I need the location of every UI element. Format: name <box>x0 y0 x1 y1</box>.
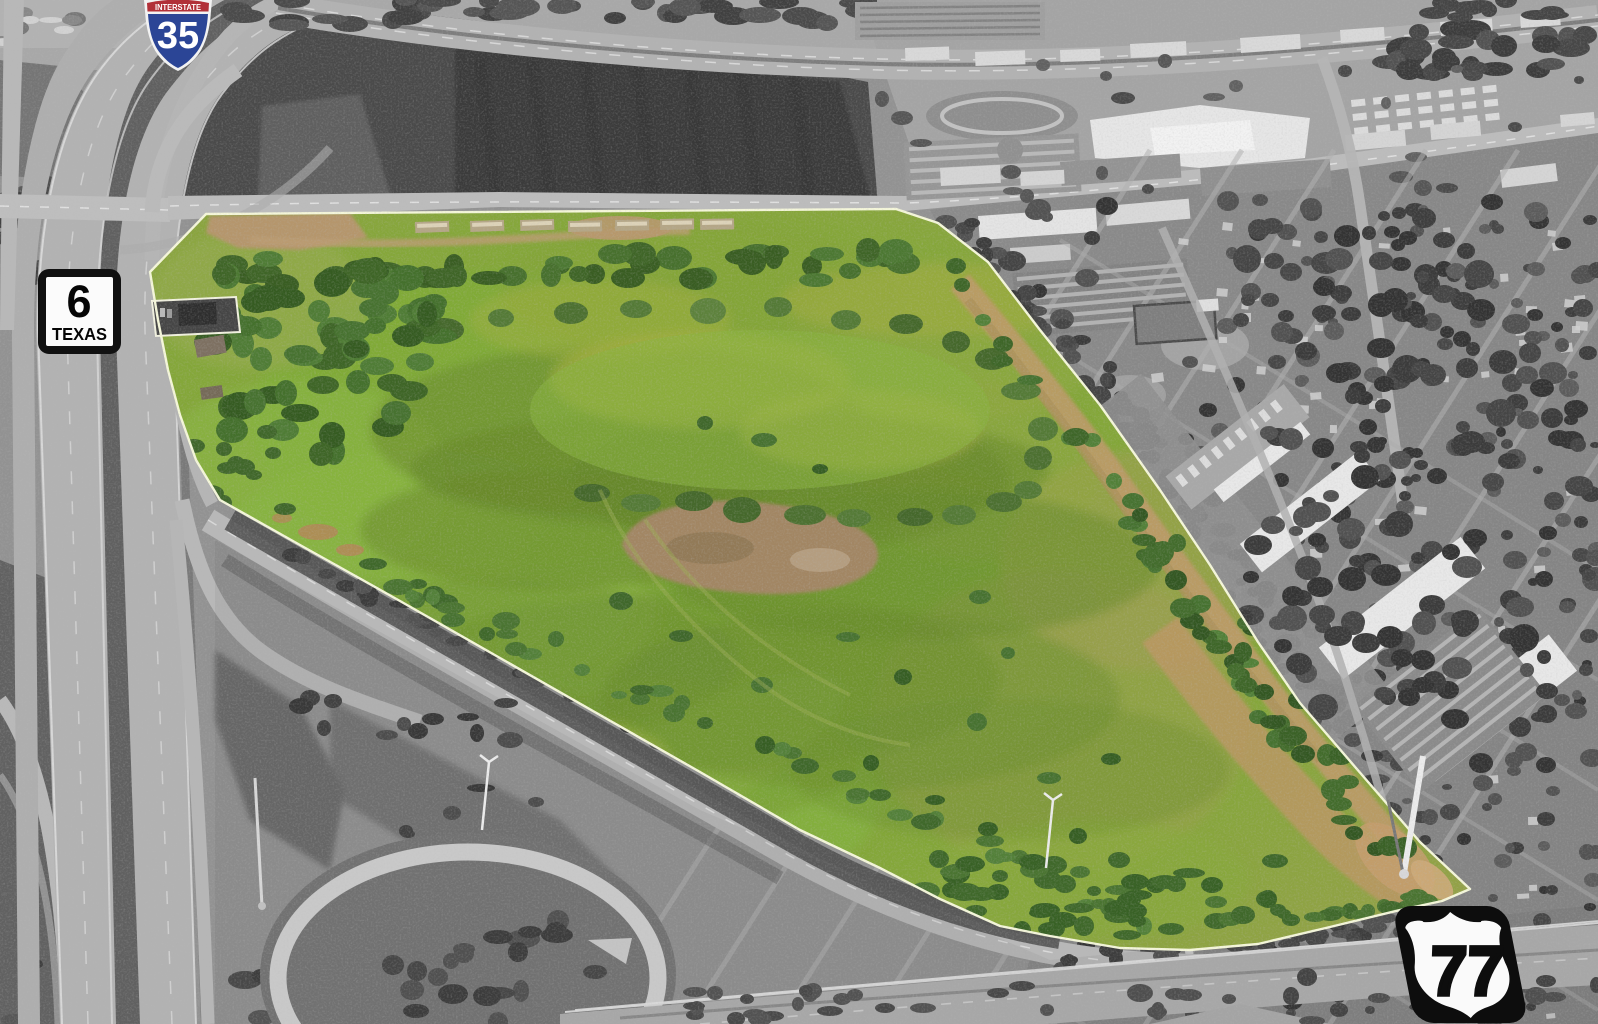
svg-text:INTERSTATE: INTERSTATE <box>155 3 202 12</box>
svg-text:35: 35 <box>157 15 199 57</box>
svg-text:6: 6 <box>66 276 91 327</box>
svg-text:TEXAS: TEXAS <box>52 324 107 344</box>
svg-text:77: 77 <box>1429 932 1506 1010</box>
